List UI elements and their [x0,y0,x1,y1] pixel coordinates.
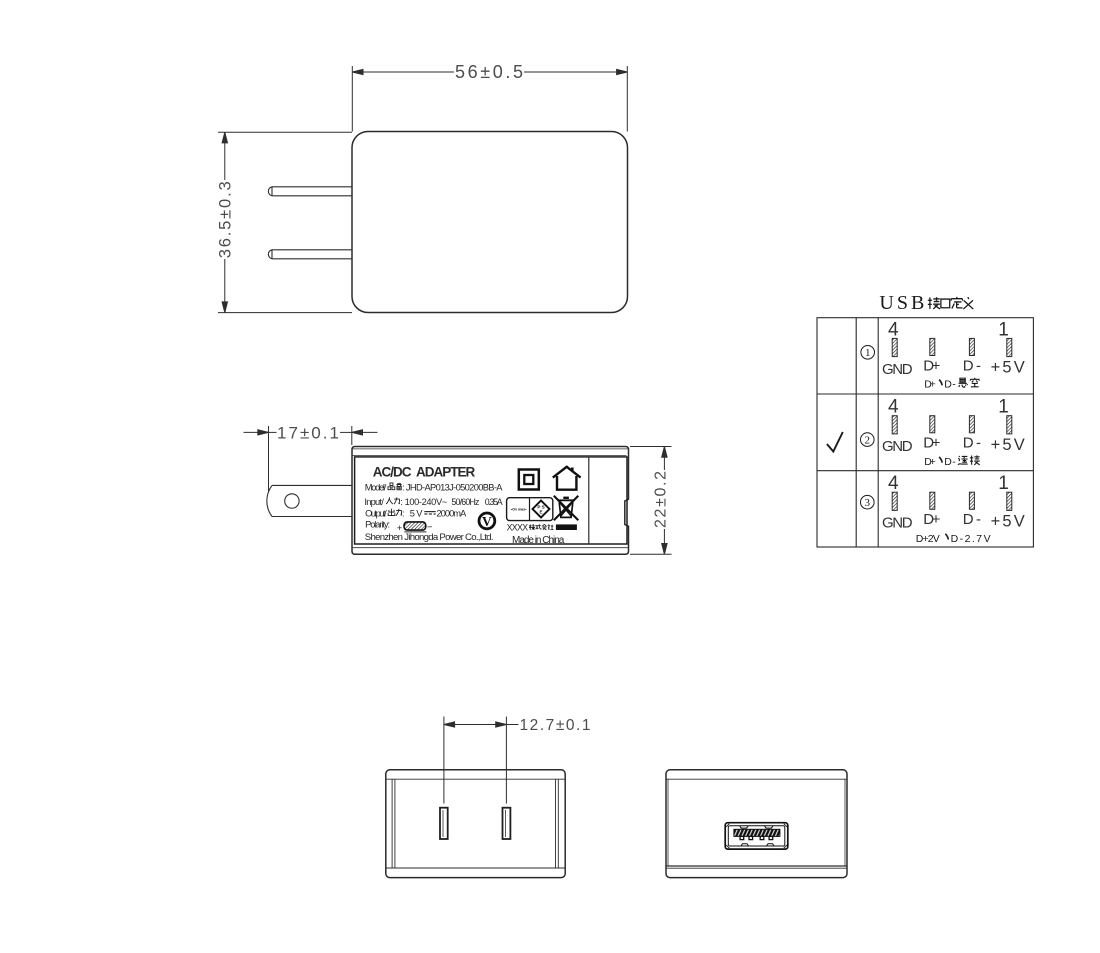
svg-text:D+: D+ [923,357,940,374]
svg-text:GND: GND [882,361,913,378]
svg-text:2: 2 [865,434,871,446]
svg-text:: JHD-AP013J-050200BB-A: : JHD-AP013J-050200BB-A [402,483,503,493]
svg-text:XXXX: XXXX [507,522,529,532]
svg-text:36.5±0.3: 36.5±0.3 [217,181,235,258]
svg-text:17±0.1: 17±0.1 [277,423,339,442]
svg-text:2000mA: 2000mA [436,508,467,518]
svg-text:: 100-240V~: : 100-240V~ [400,497,448,507]
svg-text:D+2V: D+2V [916,533,940,545]
svg-text:0.35A: 0.35A [485,497,503,507]
svg-text:E: E [539,510,542,515]
svg-text:1: 1 [865,347,871,359]
svg-text:Made in China: Made in China [512,535,565,546]
svg-text:Polarity:: Polarity: [365,519,390,529]
svg-text:1: 1 [998,319,1009,340]
svg-text:Model/: Model/ [365,483,387,493]
svg-text:Input/: Input/ [364,497,384,507]
svg-text:+5V: +5V [991,359,1025,377]
svg-text:V: V [482,514,492,529]
svg-text:50/60Hz: 50/60Hz [451,497,479,507]
svg-text:USB: USB [879,292,924,314]
svg-text:D-: D- [944,456,956,468]
svg-text:: 5V: : 5V [402,508,423,518]
svg-text:D-: D- [944,379,956,391]
svg-text:AC/DC ADAPTER: AC/DC ADAPTER [373,464,476,479]
svg-text:D+: D+ [924,379,936,391]
svg-text:D-: D- [963,357,981,374]
svg-text:▪Ov max▪: ▪Ov max▪ [511,508,527,512]
svg-text:22±0.2: 22±0.2 [653,471,670,528]
svg-text:Output/: Output/ [365,508,387,518]
svg-text:4: 4 [888,319,899,340]
svg-text:Shenzhen Jihongda Power Co.,Lt: Shenzhen Jihongda Power Co.,Ltd. [365,532,494,543]
svg-text:12.7±0.1: 12.7±0.1 [520,717,591,734]
svg-text:3: 3 [865,497,871,509]
svg-text:D+: D+ [924,456,936,468]
